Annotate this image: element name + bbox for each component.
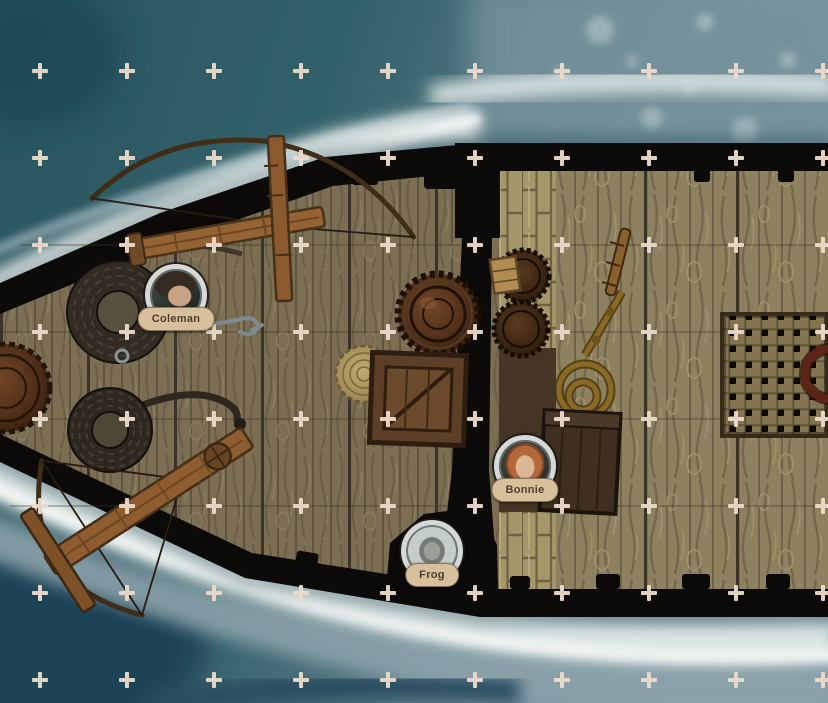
token-frog[interactable]: Frog [399, 518, 465, 584]
token-coleman[interactable]: Coleman [143, 262, 209, 328]
token-layer: ColemanBonnieFrog [0, 0, 828, 703]
token-bonnie[interactable]: Bonnie [492, 433, 558, 499]
map-canvas[interactable]: ColemanBonnieFrog [0, 0, 828, 703]
token-nameplate: Bonnie [491, 478, 558, 502]
token-nameplate: Coleman [138, 307, 215, 331]
token-nameplate: Frog [405, 563, 459, 587]
